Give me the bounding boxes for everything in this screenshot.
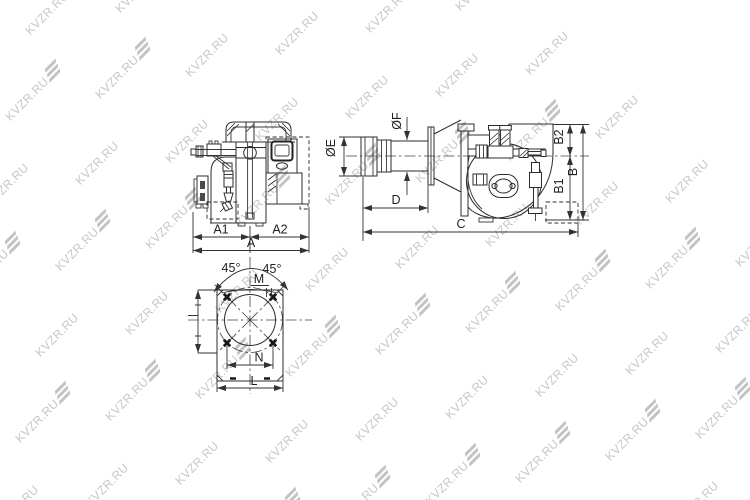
oe-extension-lines bbox=[339, 137, 361, 176]
coil-cap-2 bbox=[500, 126, 512, 131]
flange-view: 45° 45° M N bbox=[188, 257, 312, 394]
drawing-canvas: KVZR.RUKVZR.RUKVZR.RUKVZR.RUKVZR.RUKVZR.… bbox=[0, 0, 750, 500]
electrode-foot bbox=[529, 208, 543, 214]
bracket-foot-1 bbox=[196, 204, 201, 208]
valve-manifold bbox=[488, 146, 513, 158]
bracket-bolt-1 bbox=[200, 181, 205, 189]
display-screen bbox=[275, 145, 289, 156]
dim-label-a1: A1 bbox=[213, 223, 228, 237]
gas-rod-end bbox=[528, 152, 541, 156]
dim-label-n: N bbox=[254, 351, 263, 365]
valve-nozzle bbox=[224, 193, 233, 202]
gas-rod-cap bbox=[541, 150, 546, 157]
bracket-strip bbox=[194, 179, 197, 202]
left-dim-extensions bbox=[188, 290, 217, 353]
dim-label-b: B bbox=[566, 168, 580, 176]
dim-label-b1: B1 bbox=[552, 178, 566, 193]
tube-end-cap bbox=[361, 137, 377, 176]
left-arm bbox=[196, 150, 236, 156]
arm-stub-1 bbox=[209, 141, 212, 144]
dim-label-l: L bbox=[251, 374, 258, 388]
bolt-slot-top-left bbox=[224, 294, 230, 300]
hub-band bbox=[236, 148, 266, 159]
coil-cap-1 bbox=[489, 126, 501, 131]
arm-tip bbox=[191, 149, 196, 155]
side-view: ØE ØF bbox=[324, 112, 589, 241]
gas-fitting-left bbox=[476, 145, 487, 158]
valve-cylinder bbox=[224, 171, 233, 187]
handle-inner bbox=[231, 127, 286, 142]
dim-label-m: M bbox=[254, 272, 264, 286]
center-shaft bbox=[248, 142, 253, 218]
dim-label-b2: B2 bbox=[552, 129, 566, 144]
dim-label-a2: A2 bbox=[272, 223, 287, 237]
electrode-body bbox=[530, 173, 542, 188]
front-view: A1 A2 A bbox=[191, 122, 309, 253]
hub-circle bbox=[244, 147, 257, 160]
scroll-fitting bbox=[473, 174, 487, 185]
dim-label-oe: ØE bbox=[324, 139, 338, 157]
foot-1 bbox=[238, 223, 245, 226]
dim-label-c: C bbox=[456, 217, 465, 231]
handle-hatch bbox=[227, 123, 290, 136]
bracket-bolt-2 bbox=[200, 193, 205, 201]
control-knob bbox=[277, 163, 288, 169]
electrode-cap bbox=[532, 163, 540, 173]
bolt-slot-top-right bbox=[270, 294, 276, 300]
dim-label-a: A bbox=[247, 236, 256, 250]
bolt-slot-bottom-left bbox=[224, 340, 230, 346]
angle-label-right: 45° bbox=[263, 262, 282, 276]
valve-stem bbox=[227, 187, 231, 193]
housing-foot bbox=[479, 218, 493, 222]
technical-drawing: A1 A2 A ØE ØF bbox=[0, 0, 750, 500]
right-box-hatch bbox=[268, 174, 276, 192]
solenoid-coil-2 bbox=[501, 128, 511, 146]
foot-2 bbox=[256, 223, 263, 226]
angled-fitting-hatch bbox=[220, 203, 229, 212]
solenoid-coil-1 bbox=[490, 128, 500, 146]
dashed-foot bbox=[300, 204, 308, 209]
bolt-slot-bottom-right bbox=[270, 340, 276, 346]
tube-end-lines bbox=[365, 137, 373, 176]
arm-stub-2 bbox=[215, 141, 218, 144]
front-plate-cap bbox=[458, 124, 474, 131]
electrode-stem bbox=[534, 188, 539, 209]
dim-label-of: ØF bbox=[390, 112, 404, 130]
angle-label-left: 45° bbox=[222, 261, 241, 275]
arm-block bbox=[207, 144, 221, 156]
dim-label-d: D bbox=[391, 193, 400, 207]
valve-cap-lines bbox=[224, 175, 233, 179]
